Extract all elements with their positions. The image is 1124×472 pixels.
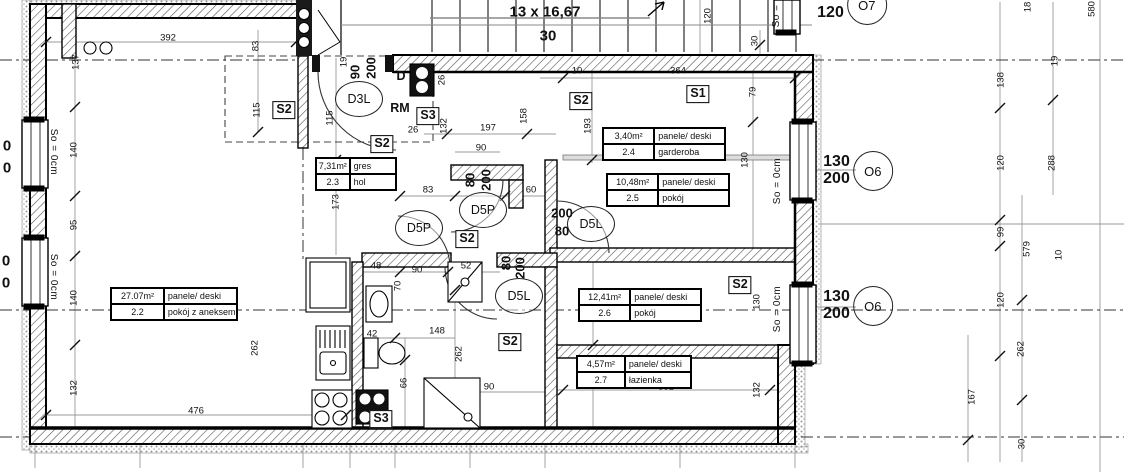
room-info-table: 27.07m² panele/ deski 2.2 pokój z anekse… bbox=[110, 287, 238, 321]
window-height: 200 bbox=[823, 171, 850, 188]
dimension-label: 476 bbox=[188, 406, 204, 416]
dimension-label: 48 bbox=[371, 261, 382, 271]
window-size-partial-label: 0 bbox=[3, 139, 11, 154]
window-size-partial-label: 0 bbox=[2, 276, 10, 291]
stair-treads-label: 13 x 16,67 bbox=[510, 4, 581, 21]
window-size-partial-label: 0 bbox=[2, 254, 10, 269]
dimension-label: 99 bbox=[996, 227, 1006, 238]
dimension-label: 10 bbox=[572, 66, 583, 76]
door-symbol-circle: D3L bbox=[335, 81, 383, 117]
room-info-table: 7,31m² gres 2.3 hol bbox=[315, 157, 397, 191]
dimension-label: 120 bbox=[703, 8, 713, 24]
dimension-label: 262 bbox=[250, 340, 260, 356]
room-floor-finish: gres bbox=[350, 158, 396, 174]
door-symbol-circle: D5L bbox=[495, 278, 543, 314]
window-right-1 bbox=[790, 119, 816, 203]
room-floor-finish: panele/ deski bbox=[654, 128, 725, 144]
room-info-table: 10,48m² panele/ deski 2.5 pokój bbox=[606, 173, 730, 207]
vent-symbol-box: S2 bbox=[569, 92, 592, 110]
dimension-label: 80 bbox=[464, 173, 477, 187]
dimension-label: 200 bbox=[480, 169, 493, 191]
room-info-table: 12,41m² panele/ deski 2.6 pokój bbox=[578, 288, 702, 322]
dimension-label: 130 bbox=[752, 294, 762, 310]
room-number: 2.7 bbox=[577, 372, 625, 388]
sill-height-label: So = 0cm bbox=[773, 286, 783, 333]
kitchen-sink bbox=[316, 326, 350, 380]
dimension-label: 148 bbox=[429, 326, 445, 336]
window-left-1 bbox=[22, 117, 48, 191]
dimension-label: 392 bbox=[160, 33, 176, 43]
dimension-label: 140 bbox=[69, 290, 79, 306]
window-height: 120 bbox=[817, 5, 844, 22]
dimension-label: 83 bbox=[423, 185, 434, 195]
dimension-label: 579 bbox=[1022, 241, 1032, 257]
dimension-label: 19 bbox=[1050, 56, 1060, 67]
window-left-2 bbox=[22, 235, 48, 309]
kitchen-cabinet bbox=[306, 258, 350, 312]
room-name: łazienka bbox=[625, 372, 691, 388]
sill-height-label: So = 0cm bbox=[48, 129, 58, 176]
window-type-circle: O7 bbox=[847, 0, 887, 25]
room-floor-finish: panele/ deski bbox=[658, 174, 729, 190]
window-tag: 120 120 O7 bbox=[817, 0, 887, 25]
dimension-label: 30 bbox=[750, 36, 760, 47]
room-number: 2.5 bbox=[607, 190, 658, 206]
room-floor-finish: panele/ deski bbox=[164, 288, 237, 304]
dimension-label: 262 bbox=[454, 346, 464, 362]
stair-rise-label: 30 bbox=[540, 28, 557, 45]
dimension-label: 26 bbox=[437, 75, 447, 86]
window-tag: 130 200 O6 bbox=[823, 286, 893, 326]
electric-meter-box bbox=[410, 64, 434, 96]
vent-symbol-box: S2 bbox=[272, 101, 295, 119]
window-width: 130 bbox=[823, 154, 850, 171]
room-area: 27.07m² bbox=[111, 288, 164, 304]
dimension-label: 90 bbox=[412, 265, 423, 275]
vent-symbol-box: S2 bbox=[370, 135, 393, 153]
room-number: 2.4 bbox=[603, 144, 654, 160]
dimension-label: 138 bbox=[996, 72, 1006, 88]
room-name: pokój bbox=[630, 305, 701, 321]
window-tag: 130 200 O6 bbox=[823, 151, 893, 191]
dimension-label: 197 bbox=[480, 123, 496, 133]
dimension-label: 26 bbox=[408, 125, 419, 135]
dimension-label: 52 bbox=[461, 261, 472, 271]
room-area: 10,48m² bbox=[607, 174, 658, 190]
room-name: pokój z aneksem bbox=[164, 304, 237, 320]
dimension-label: 132 bbox=[439, 118, 449, 134]
dimension-label: 288 bbox=[1047, 155, 1057, 171]
dimension-label: 364 bbox=[670, 66, 686, 76]
dimension-label: 158 bbox=[519, 108, 529, 124]
window-right-2 bbox=[790, 282, 816, 366]
dimension-label: 200 bbox=[365, 57, 378, 79]
room-number: 2.6 bbox=[579, 305, 630, 321]
dimension-label: 70 bbox=[393, 281, 403, 292]
washbasin bbox=[366, 286, 392, 322]
dimension-label: 42 bbox=[367, 329, 378, 339]
vent-symbol-box: S1 bbox=[686, 85, 709, 103]
room-info-table: 4,57m² panele/ deski 2.7 łazienka bbox=[576, 355, 692, 389]
window-width: 130 bbox=[823, 289, 850, 306]
dimension-label: 132 bbox=[752, 382, 762, 398]
sill-height-label: So = 0cm bbox=[773, 158, 783, 205]
toilet bbox=[364, 338, 405, 368]
sill-height-label: So = bbox=[772, 5, 782, 28]
room-area: 7,31m² bbox=[316, 158, 350, 174]
dimension-label: 115 bbox=[325, 110, 335, 125]
dimension-label: 140 bbox=[69, 142, 79, 158]
dimension-label: 30 bbox=[1017, 439, 1027, 450]
text-label: D bbox=[396, 70, 405, 83]
dimension-label: 115 bbox=[252, 102, 262, 117]
dimension-label: 80 bbox=[500, 256, 513, 270]
text-label: RM bbox=[390, 102, 409, 115]
window-height: 200 bbox=[823, 306, 850, 323]
dimension-label: 167 bbox=[967, 389, 977, 405]
window-size-partial-label: 0 bbox=[3, 161, 11, 176]
room-floor-finish: panele/ deski bbox=[625, 356, 691, 372]
room-number: 2.2 bbox=[111, 304, 164, 320]
door-symbol-circle: D5P bbox=[459, 192, 507, 228]
dimension-label: 66 bbox=[399, 378, 409, 389]
window-type-circle: O6 bbox=[853, 151, 893, 191]
dimension-label: 90 bbox=[349, 65, 362, 79]
dimension-label: 120 bbox=[996, 292, 1006, 308]
door-symbol-circle: D5L bbox=[567, 206, 615, 242]
dimension-label: 60 bbox=[526, 185, 537, 195]
room-floor-finish: panele/ deski bbox=[630, 289, 701, 305]
vent-symbol-box: S2 bbox=[498, 333, 521, 351]
dimension-label: 10 bbox=[1054, 250, 1064, 261]
sill-height-label: So = 0cm bbox=[48, 254, 58, 301]
vent-symbol-box: S3 bbox=[369, 410, 392, 428]
dimension-label: 173 bbox=[331, 194, 341, 210]
room-name: garderoba bbox=[654, 144, 725, 160]
door-symbol-circle: D5P bbox=[395, 210, 443, 246]
dimension-label: 90 bbox=[484, 382, 495, 392]
room-area: 12,41m² bbox=[579, 289, 630, 305]
room-info-table: 3,40m² panele/ deski 2.4 garderoba bbox=[602, 127, 726, 161]
dimension-label: 193 bbox=[583, 118, 593, 134]
vent-symbol-box: S3 bbox=[416, 107, 439, 125]
room-name: pokój bbox=[658, 190, 729, 206]
window-type-circle: O6 bbox=[853, 286, 893, 326]
dimension-label: 262 bbox=[1016, 341, 1026, 357]
dimension-label: 18 bbox=[1023, 2, 1033, 13]
shower bbox=[424, 378, 480, 428]
dimension-label: 90 bbox=[476, 143, 487, 153]
floor-plan-page: 3924761979083601036426485290421489038183… bbox=[0, 0, 1124, 472]
dimension-label: 130 bbox=[740, 152, 750, 168]
room-area: 3,40m² bbox=[603, 128, 654, 144]
dimension-label: 137 bbox=[71, 54, 81, 70]
dimension-label: 200 bbox=[514, 257, 527, 279]
dimension-label: 120 bbox=[996, 155, 1006, 171]
room-area: 4,57m² bbox=[577, 356, 625, 372]
dimension-label: 79 bbox=[748, 87, 758, 98]
vent-symbol-box: S2 bbox=[455, 230, 478, 248]
dimension-label: 200 bbox=[551, 207, 573, 220]
dimension-label: 580 bbox=[1087, 1, 1097, 17]
dimension-label: 95 bbox=[69, 220, 79, 231]
dimension-label: 80 bbox=[555, 225, 569, 238]
vent-symbol-box: S2 bbox=[728, 276, 751, 294]
cooktop-white bbox=[312, 390, 352, 428]
room-number: 2.3 bbox=[316, 174, 350, 190]
room-name: hol bbox=[350, 174, 396, 190]
dimension-label: 132 bbox=[69, 380, 79, 396]
dimension-label: 83 bbox=[251, 41, 261, 52]
